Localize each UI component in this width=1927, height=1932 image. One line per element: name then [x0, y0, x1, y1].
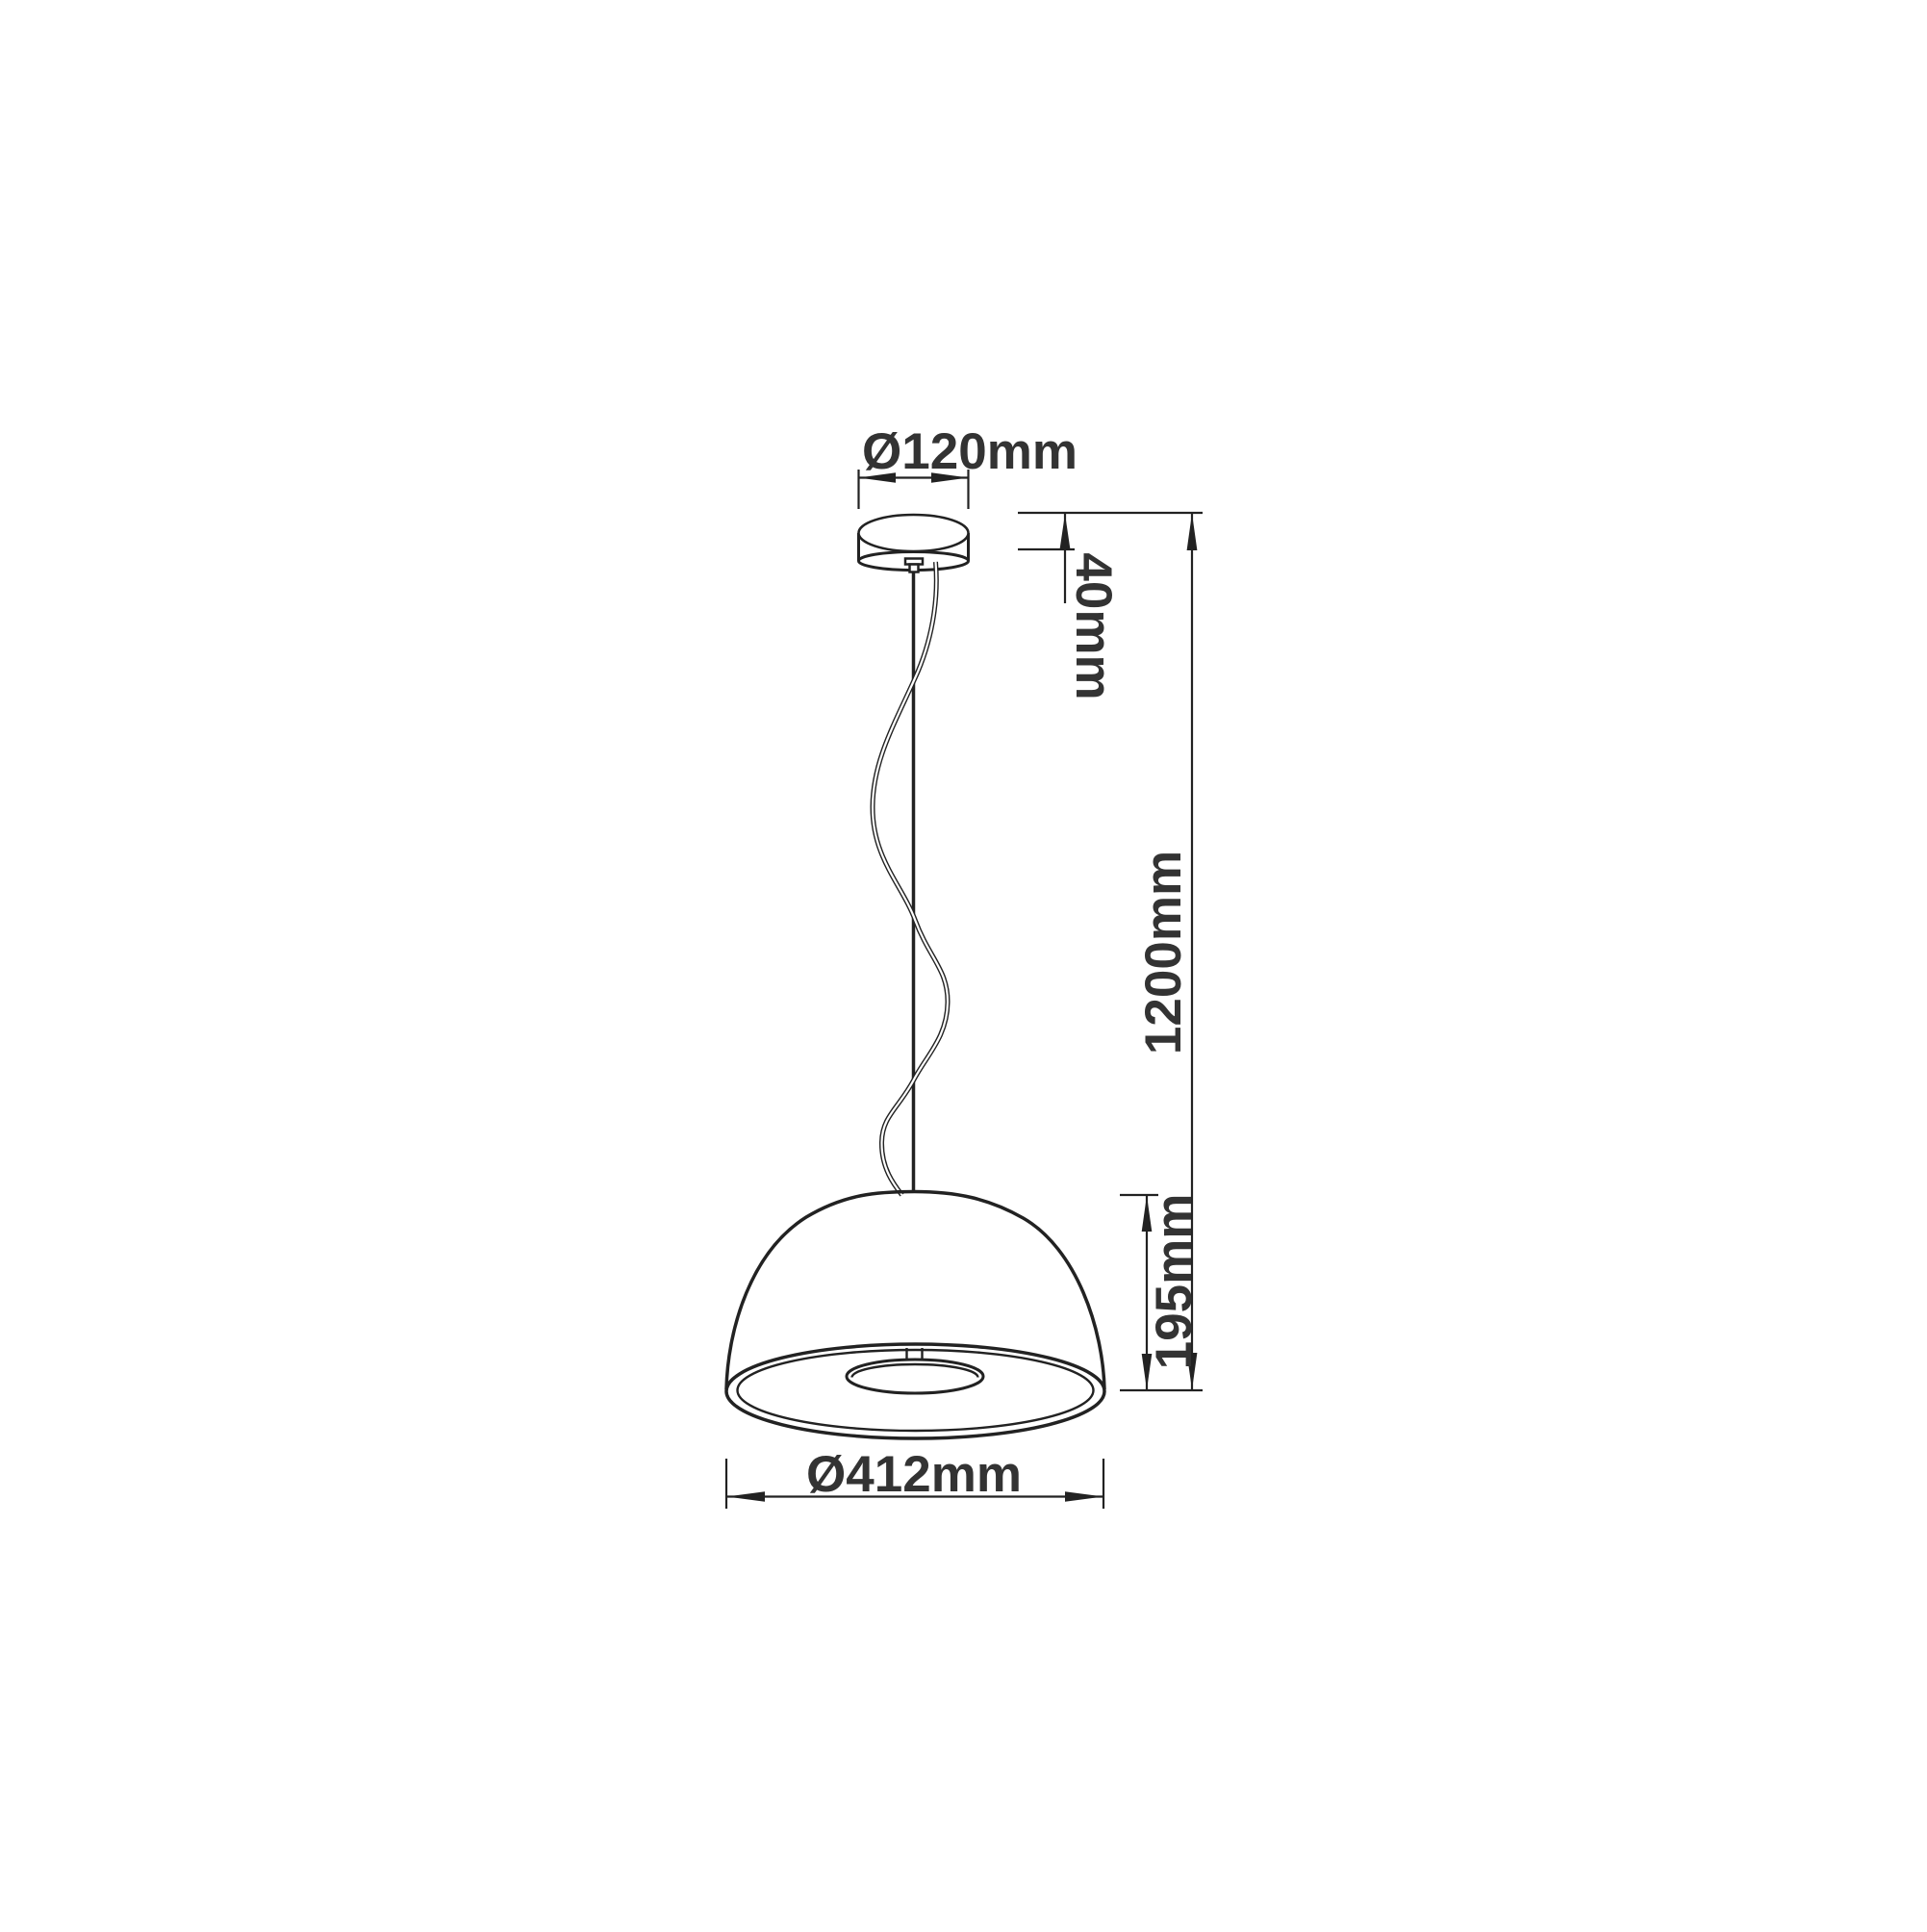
pendant-lamp-drawing: Ø120mm 40mm 1200mm 195mm Ø412mm: [0, 0, 1927, 1927]
shade-rim-inner-ellipse: [738, 1350, 1094, 1431]
dimension-shade-height: 195mm: [1120, 1194, 1203, 1390]
dimension-canopy-diameter: Ø120mm: [859, 423, 1078, 509]
shade-height-label: 195mm: [1146, 1194, 1203, 1370]
power-cord-wave-core: [873, 562, 948, 1195]
suspension-length-label: 1200mm: [1135, 851, 1192, 1055]
arrowhead-up: [1187, 514, 1198, 551]
dimension-canopy-height: 40mm: [1018, 513, 1203, 700]
dimension-shade-diameter: Ø412mm: [726, 1446, 1103, 1509]
canopy-top-ellipse: [859, 515, 969, 551]
technical-drawing-canvas: Ø120mm 40mm 1200mm 195mm Ø412mm: [0, 0, 1927, 1927]
power-cord-wave: [873, 562, 948, 1195]
lamp-shade: [726, 1192, 1104, 1439]
canopy-diameter-label: Ø120mm: [862, 423, 1078, 480]
diffuser-hole-inner-arc: [852, 1364, 978, 1378]
connector-stem: [910, 565, 919, 572]
arrowhead-up: [1060, 514, 1071, 548]
shade-diameter-label: Ø412mm: [806, 1446, 1022, 1503]
arrowhead-left: [726, 1491, 765, 1502]
canopy-height-label: 40mm: [1065, 552, 1122, 699]
arrowhead-right: [1065, 1491, 1103, 1502]
